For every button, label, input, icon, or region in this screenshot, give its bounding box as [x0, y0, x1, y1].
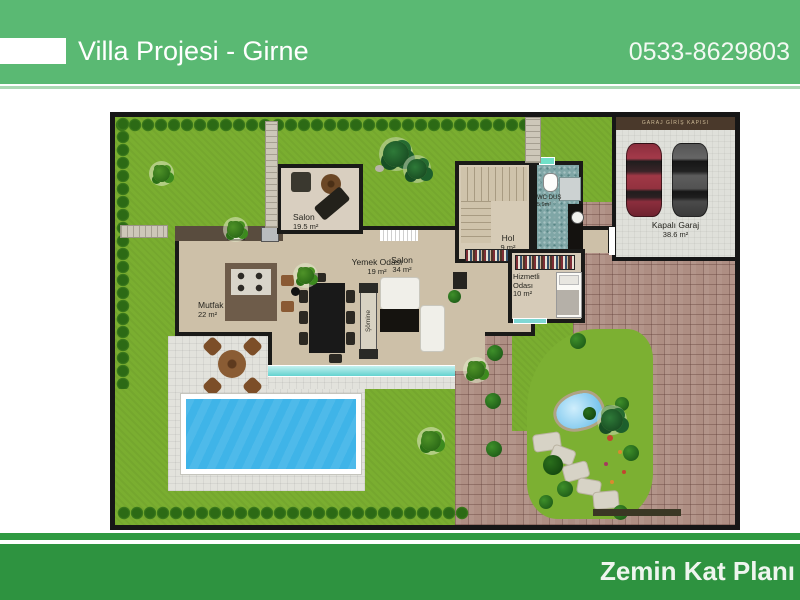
bush [543, 455, 563, 475]
armchair [291, 172, 311, 192]
room-label-salon-main: Salon 34 m² [378, 256, 426, 274]
dining-chair [299, 332, 308, 345]
header-accent-tab [0, 38, 66, 64]
entrance-door [539, 157, 555, 165]
dining-chair [299, 311, 308, 324]
stool [281, 275, 294, 286]
header-divider-green [0, 86, 800, 89]
washbasin [571, 211, 584, 224]
hedge-bottom [117, 505, 469, 521]
bush [557, 481, 573, 497]
footer-divider-green [0, 533, 800, 540]
room-label-garaj: Kapalı Garaj 38.6 m² [616, 221, 735, 239]
garage: GARAJ GİRİŞ KAPISI Kapalı Garaj 38.6 m² [612, 117, 735, 261]
bush [623, 445, 639, 461]
entry-walk [525, 117, 541, 163]
dining-chair [346, 311, 355, 324]
fireplace-cap [359, 283, 378, 293]
window [513, 318, 547, 324]
glass-wall [268, 365, 455, 377]
side-table [453, 272, 467, 289]
footer-bar: Zemin Kat Planı [0, 544, 800, 600]
pillow [559, 275, 579, 285]
garden-gate-bar [593, 509, 681, 516]
bush [615, 397, 629, 411]
room-label-hol: Hol 9 m² [486, 234, 530, 252]
stool [281, 301, 294, 312]
potted-plant [448, 290, 461, 303]
shower [559, 177, 581, 201]
garage-door-bar: GARAJ GİRİŞ KAPISI [616, 117, 735, 130]
fireplace-cap [359, 349, 378, 359]
bush [583, 407, 596, 420]
header-bar: Villa Projesi - Girne 0533-8629803 [0, 0, 800, 84]
phone-number: 0533-8629803 [629, 38, 790, 67]
terrace-strip [268, 375, 455, 389]
slide: Villa Projesi - Girne 0533-8629803 [0, 0, 800, 600]
wardrobe [515, 255, 575, 270]
window-curtain [380, 230, 418, 241]
patio-table [218, 350, 246, 378]
palm-tree [383, 141, 409, 167]
bush [539, 495, 553, 509]
sofa [420, 305, 445, 352]
sofa [380, 277, 420, 310]
page-title: Villa Projesi - Girne [78, 36, 309, 67]
dining-chair [346, 332, 355, 345]
palm-tree [601, 409, 623, 431]
tree [153, 165, 170, 182]
dining-table [309, 283, 345, 353]
fireplace-label: Şömine [365, 310, 372, 332]
side-path [265, 121, 278, 228]
bush [487, 345, 503, 361]
hedge-top [115, 117, 539, 133]
tree [467, 361, 485, 379]
dining-chair [299, 290, 308, 303]
sofa [314, 186, 351, 221]
bush [570, 333, 586, 349]
tv-unit [380, 309, 419, 332]
tree [227, 221, 244, 238]
vase [291, 287, 300, 296]
stove [231, 269, 271, 295]
fireplace: Şömine [360, 285, 377, 357]
tree [297, 267, 314, 284]
garden-path [120, 225, 168, 238]
room-label-wc: WC DUŞ 5,9m² [537, 195, 561, 208]
bush [486, 441, 502, 457]
toilet [543, 173, 558, 192]
bush [485, 393, 501, 409]
room-salon-upper [277, 164, 363, 234]
garage-side-door [609, 227, 615, 255]
car-gray [672, 143, 708, 217]
room-label-salon-upper: Salon 19.5 m² [293, 213, 318, 231]
blanket [557, 290, 579, 315]
stairs [461, 167, 527, 201]
tree [421, 431, 441, 451]
car-red [626, 143, 662, 217]
dining-chair [313, 273, 326, 282]
rock [375, 165, 384, 172]
palm-tree [407, 159, 427, 179]
room-label-mutfak: Mutfak 22 m² [198, 301, 224, 319]
bed [556, 272, 582, 318]
footer-title: Zemin Kat Planı [600, 556, 795, 587]
dining-chair [329, 354, 342, 363]
hedge-left [115, 117, 131, 389]
floor-plan: Şömine Salon 19.5 m² [110, 112, 740, 530]
swimming-pool [181, 394, 361, 474]
room-wc [533, 161, 583, 263]
room-label-hizmetli: Hizmetli Odası 10 m² [513, 273, 553, 299]
flowers [607, 435, 613, 441]
dining-chair [346, 290, 355, 303]
